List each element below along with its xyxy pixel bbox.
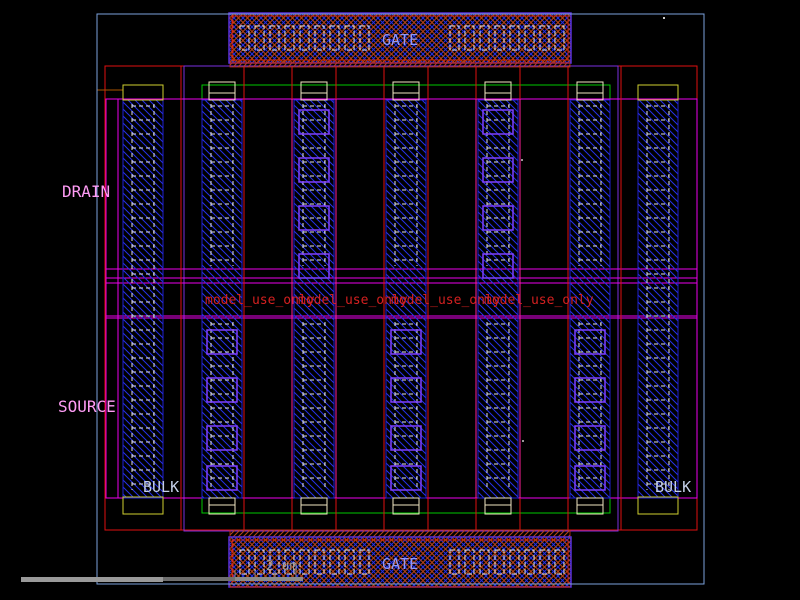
artifact-dot xyxy=(522,440,524,442)
bulk-contact-column xyxy=(638,85,678,514)
gate-top-label: GATE xyxy=(382,31,418,49)
watermark-group: model_use_onlymodel_use_onlymodel_use_on… xyxy=(205,293,594,308)
drain-label: DRAIN xyxy=(62,182,110,201)
layout-editor-viewport: model_use_onlymodel_use_onlymodel_use_on… xyxy=(0,0,800,600)
watermark-text: model_use_only xyxy=(484,293,594,308)
scrollbar-thumb[interactable] xyxy=(21,577,163,582)
layout-canvas[interactable]: model_use_onlymodel_use_onlymodel_use_on… xyxy=(0,0,800,600)
artifact-dot xyxy=(663,17,665,19)
bulk-contact-column xyxy=(123,85,163,514)
gate-bottom-label: GATE xyxy=(382,555,418,573)
source-label: SOURCE xyxy=(58,397,116,416)
bulk-left-label: BULK xyxy=(143,478,179,496)
artifact-dot xyxy=(521,159,523,161)
scale-label: 2 um xyxy=(266,559,297,574)
bulk-right-label: BULK xyxy=(655,478,691,496)
scrollbar-thumb-end[interactable] xyxy=(163,577,235,581)
